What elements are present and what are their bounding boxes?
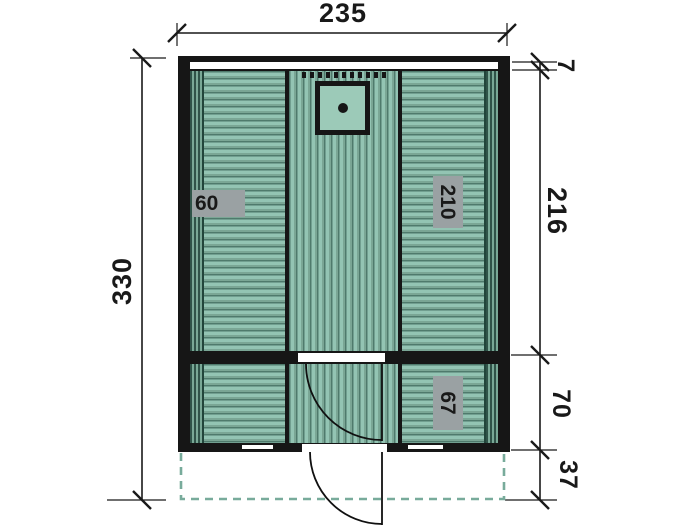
floor-plan-canvas: 60 210 67 bbox=[0, 0, 700, 525]
sauna-right-edge-board bbox=[486, 71, 498, 351]
right-bench-label: 210 bbox=[433, 176, 463, 228]
terrace-dashed-outline bbox=[181, 453, 504, 499]
partition-door-opening bbox=[298, 353, 385, 362]
dim-terrace-depth: 37 bbox=[556, 453, 580, 497]
left-bench-label: 60 bbox=[192, 190, 245, 217]
roof-edge-board bbox=[190, 62, 498, 71]
right-bench-value: 210 bbox=[438, 184, 459, 219]
dim-roof-edge: 7 bbox=[554, 53, 576, 79]
front-door-opening bbox=[302, 444, 387, 453]
front-bench-label: 67 bbox=[433, 376, 463, 430]
stove-square bbox=[315, 81, 370, 135]
front-floor bbox=[289, 364, 398, 443]
dim-front-room-depth-value: 70 bbox=[547, 389, 575, 419]
front-left-bench bbox=[204, 364, 285, 443]
dim-left-total-depth-value: 330 bbox=[107, 257, 137, 305]
front-left-edge-board bbox=[190, 364, 202, 443]
stove-flue-dot bbox=[338, 103, 348, 113]
dim-roof-edge-value: 7 bbox=[552, 59, 579, 73]
vent-dashes bbox=[302, 72, 390, 78]
dim-terrace-depth-value: 37 bbox=[554, 460, 582, 490]
front-door-arc bbox=[310, 452, 382, 524]
left-window bbox=[242, 445, 273, 450]
dim-top-width: 235 bbox=[308, 0, 378, 26]
dim-top-width-value: 235 bbox=[319, 0, 367, 28]
dim-main-room-depth: 216 bbox=[544, 178, 570, 244]
left-wall bbox=[178, 56, 190, 452]
right-wall bbox=[498, 56, 510, 452]
right-window bbox=[408, 445, 443, 450]
dim-left-total-depth: 330 bbox=[107, 251, 137, 311]
front-bench-value: 67 bbox=[438, 391, 459, 414]
dim-main-room-depth-value: 216 bbox=[542, 187, 572, 235]
stove-top bbox=[320, 86, 365, 130]
left-bench-value: 60 bbox=[195, 193, 218, 214]
dim-front-room-depth: 70 bbox=[549, 382, 573, 426]
front-right-edge-board bbox=[486, 364, 498, 443]
